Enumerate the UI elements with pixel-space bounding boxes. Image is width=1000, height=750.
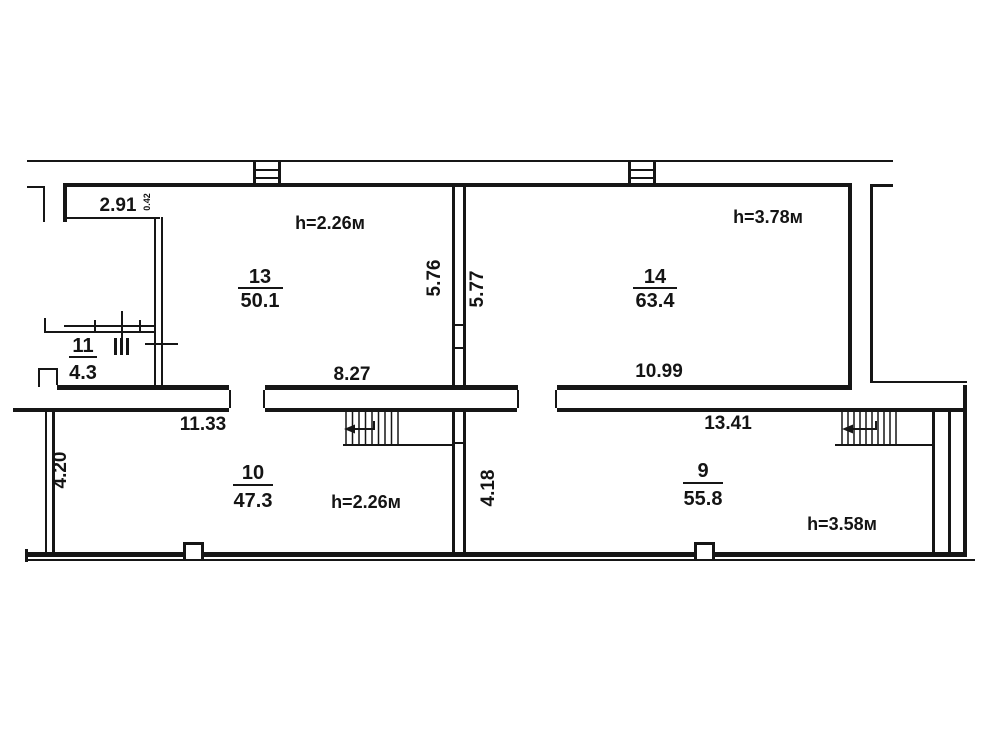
door-bump-room9 <box>694 542 715 559</box>
dim-room13-side: 5.76 <box>424 260 445 297</box>
staircase-room10 <box>343 412 455 446</box>
room-11-number: 11 <box>72 335 93 357</box>
room-9-number: 9 <box>697 460 708 482</box>
dim-room14-side: 5.77 <box>467 271 488 308</box>
dim-room9-side: 4.18 <box>478 470 499 507</box>
room-10-height: h=2.26м <box>331 492 401 512</box>
window-symbol-right <box>628 161 656 185</box>
floor-plan-canvas: 2.91 0.42 8.27 10.99 11.33 13.41 5.76 5.… <box>0 0 1000 750</box>
room-13-height: h=2.26м <box>295 213 365 233</box>
radiator-icon <box>114 338 129 355</box>
floor-plan: 2.91 0.42 8.27 10.99 11.33 13.41 5.76 5.… <box>0 0 1000 750</box>
room-13-number: 13 <box>249 266 271 288</box>
staircase-room9 <box>835 412 934 446</box>
door-bump-room10 <box>183 542 204 559</box>
dim-room9-top: 13.41 <box>704 413 752 434</box>
dim-niche-width: 2.91 <box>100 195 137 216</box>
room-13-area: 50.1 <box>241 290 280 312</box>
room11-partition <box>44 318 155 333</box>
room-11-area: 4.3 <box>69 362 97 384</box>
room-10-area: 47.3 <box>234 490 273 512</box>
dim-niche-side: 0.42 <box>142 193 152 211</box>
dim-room13-bottom: 8.27 <box>334 364 371 385</box>
dim-room10-top: 11.33 <box>180 414 227 435</box>
room-14-height: h=3.78м <box>733 207 803 227</box>
room-14-number: 14 <box>644 266 667 288</box>
room-10-number: 10 <box>242 462 264 484</box>
window-symbol-left <box>253 161 281 185</box>
dim-room14-bottom: 10.99 <box>635 361 683 382</box>
room-9-height: h=3.58м <box>807 514 877 534</box>
dim-room10-side: 4.20 <box>50 452 71 489</box>
room-9-area: 55.8 <box>684 488 723 510</box>
room-14-area: 63.4 <box>636 290 676 312</box>
wall-cross-mark-icon <box>145 343 178 345</box>
